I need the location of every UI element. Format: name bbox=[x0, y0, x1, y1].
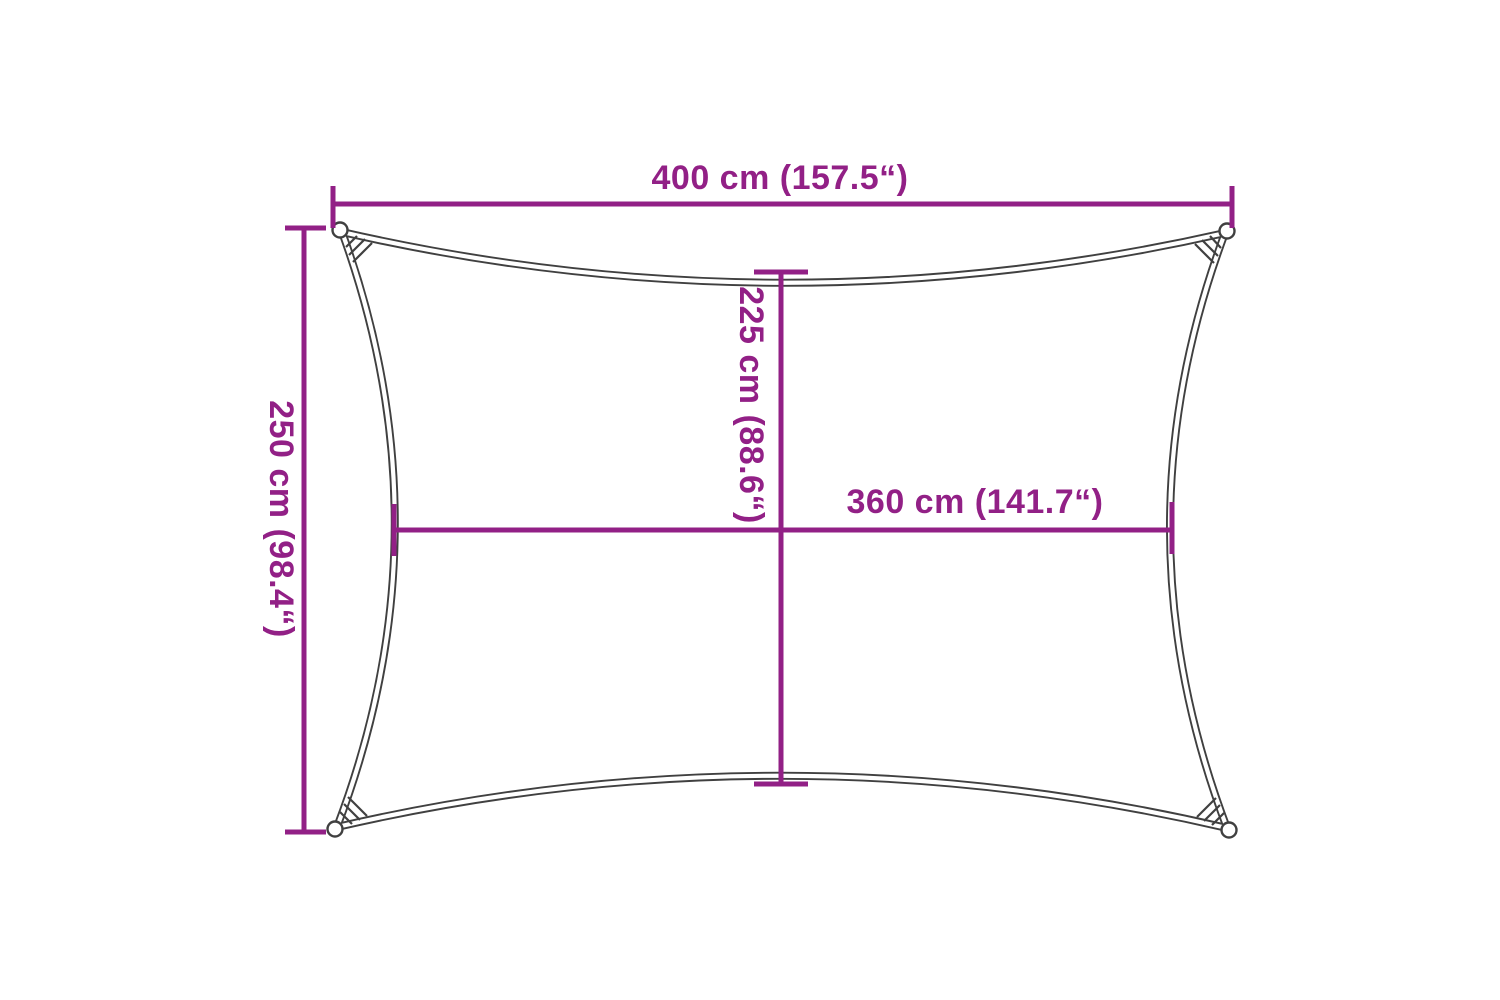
corner-ring-bottom-left bbox=[328, 822, 343, 837]
corner-ring-bottom-right bbox=[1222, 823, 1237, 838]
dim-label-left-height: 250 cm (98.4“) bbox=[261, 359, 301, 679]
diagram-canvas: 400 cm (157.5“) 250 cm (98.4“) 225 cm (8… bbox=[0, 0, 1500, 1000]
dim-label-center-width: 360 cm (141.7“) bbox=[625, 482, 1325, 522]
dim-label-top-width: 400 cm (157.5“) bbox=[430, 158, 1130, 198]
